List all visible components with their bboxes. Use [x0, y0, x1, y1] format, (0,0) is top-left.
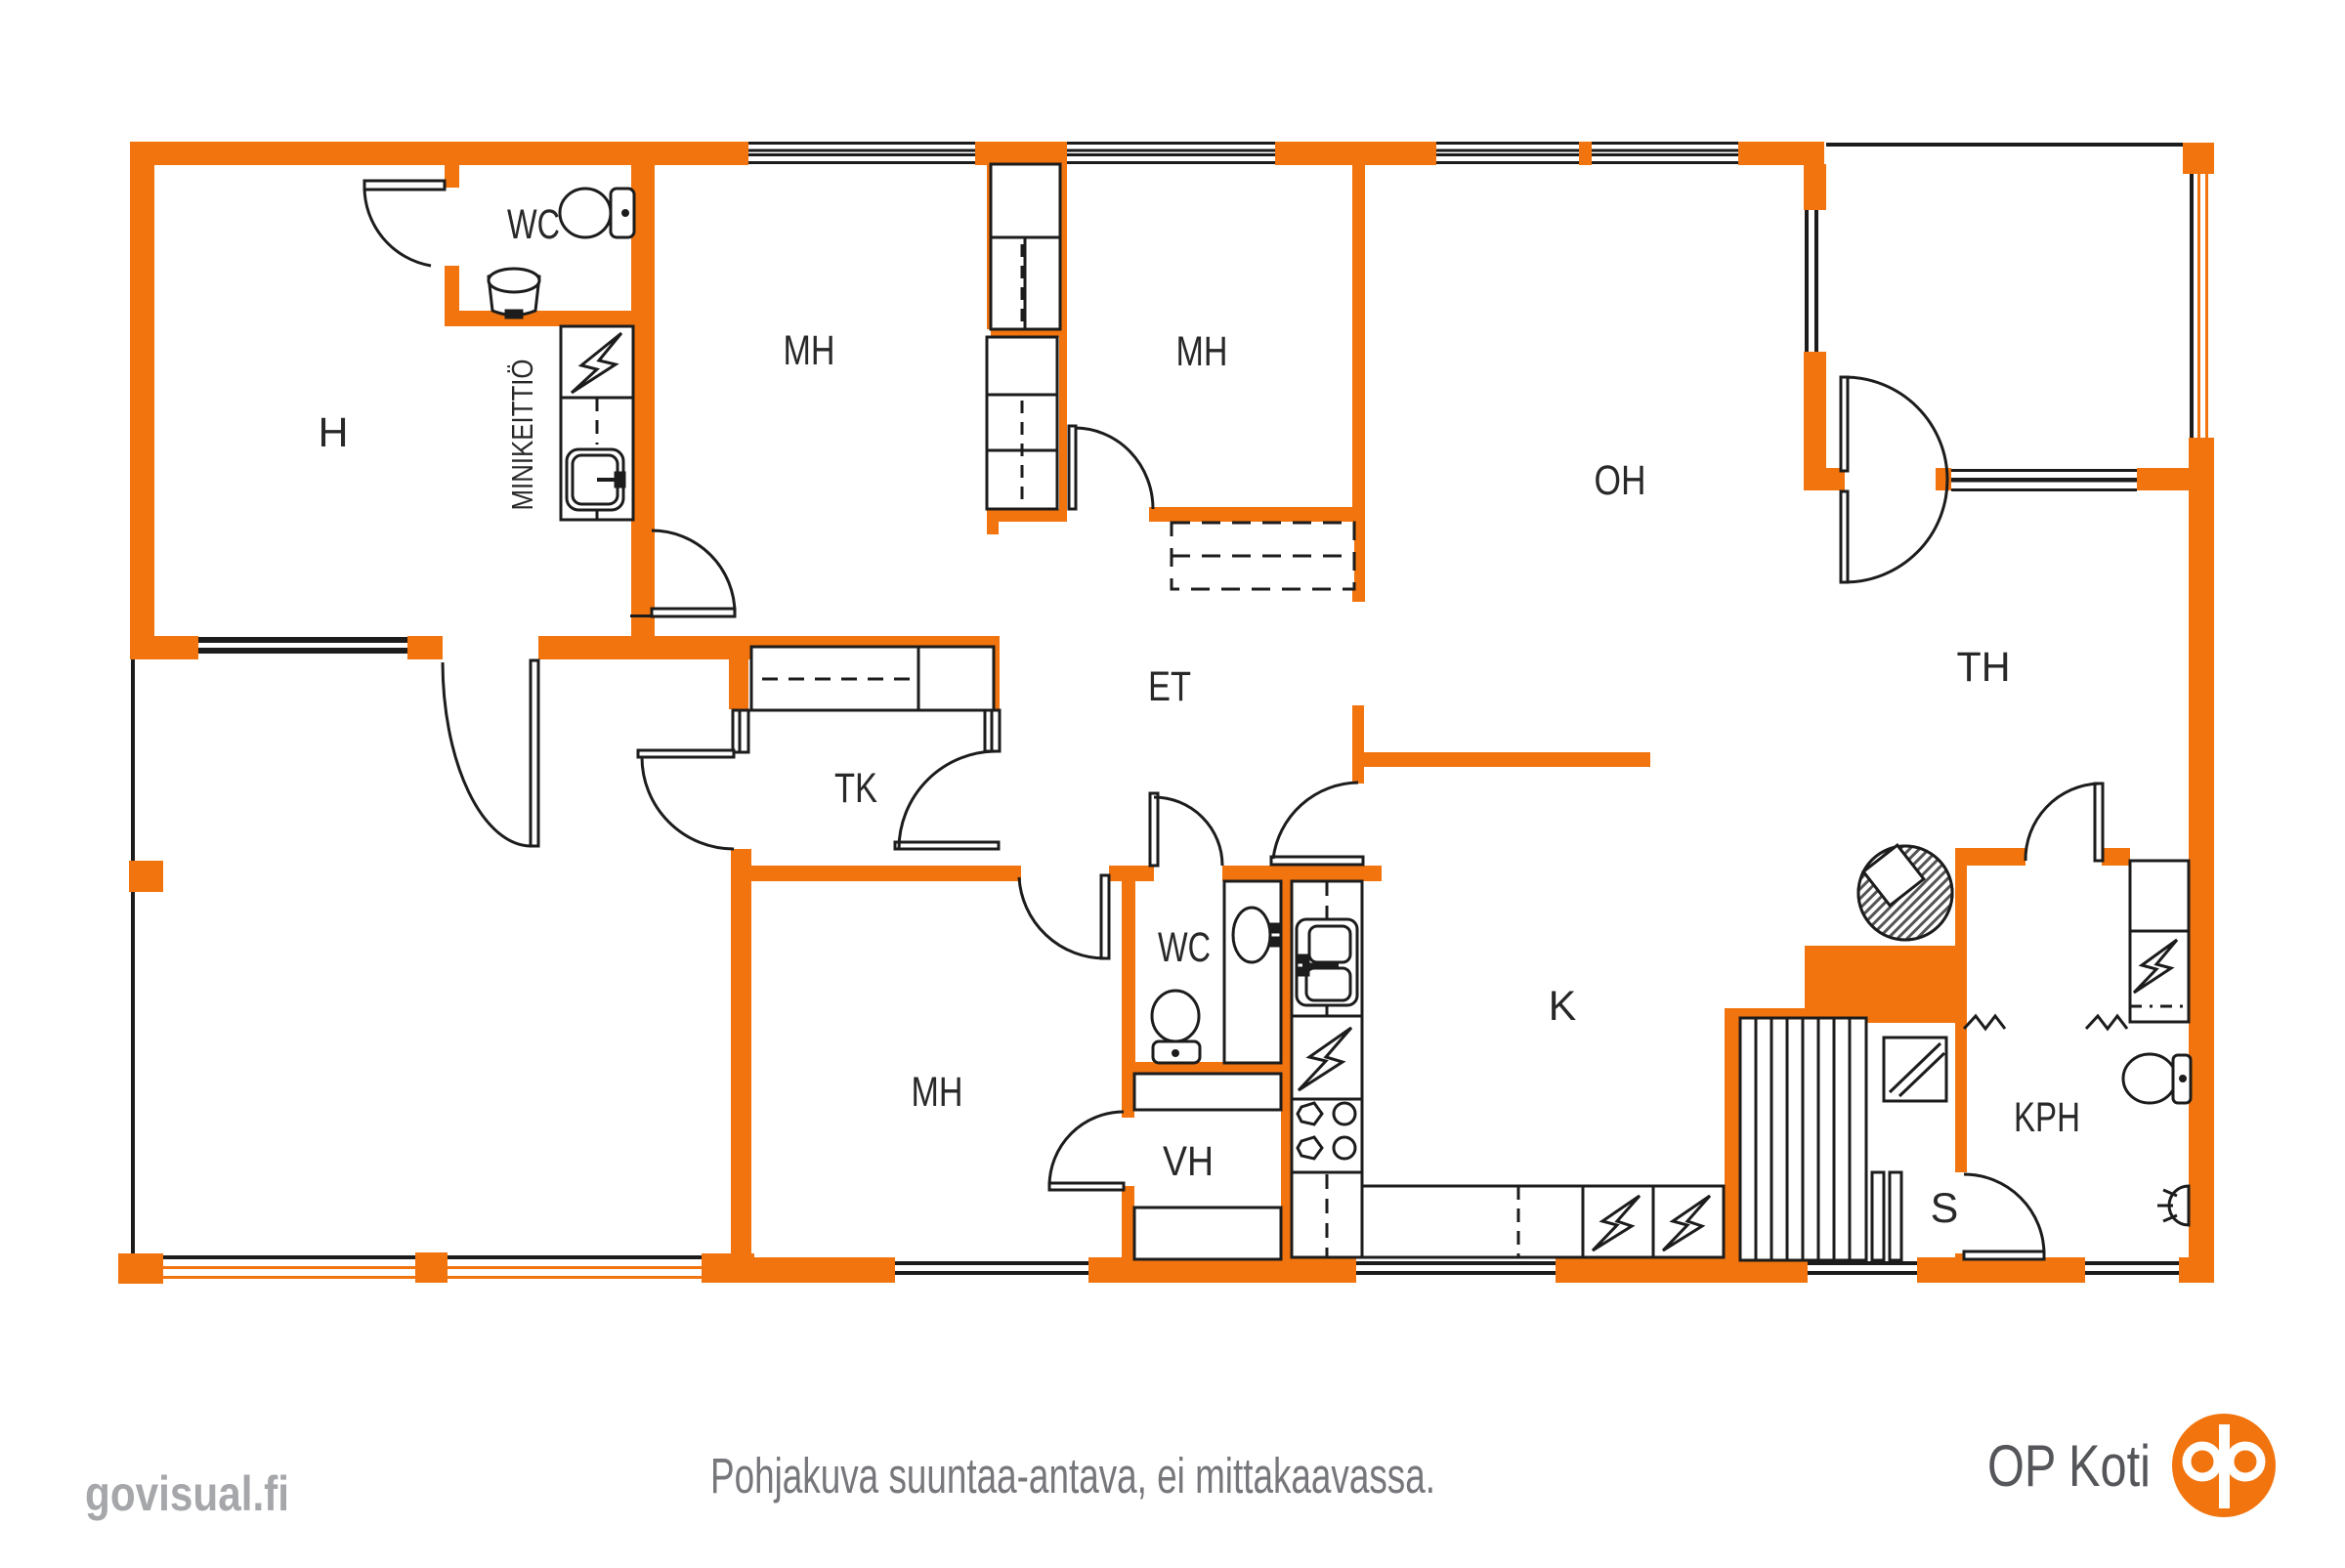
svg-text:S: S [1931, 1185, 1959, 1232]
svg-text:MH: MH [1176, 328, 1228, 375]
svg-text:OP Koti: OP Koti [1987, 1433, 2151, 1499]
svg-text:Pohjakuva suuntaa-antava, ei m: Pohjakuva suuntaa-antava, ei mittakaavas… [710, 1448, 1435, 1504]
svg-text:govisual.fi: govisual.fi [85, 1466, 289, 1521]
svg-text:OH: OH [1595, 457, 1646, 504]
svg-text:MINIKEITTIÖ: MINIKEITTIÖ [505, 360, 539, 511]
svg-text:ET: ET [1148, 663, 1191, 710]
svg-text:KPH: KPH [2014, 1094, 2080, 1141]
svg-text:H: H [318, 409, 348, 456]
svg-text:TH: TH [1957, 644, 2011, 691]
svg-text:K: K [1549, 983, 1577, 1030]
svg-text:MH: MH [784, 327, 835, 374]
svg-text:WC: WC [507, 201, 560, 248]
svg-text:WC: WC [1158, 924, 1211, 971]
svg-text:TK: TK [834, 765, 877, 812]
svg-text:MH: MH [912, 1069, 963, 1116]
svg-text:VH: VH [1163, 1138, 1214, 1185]
